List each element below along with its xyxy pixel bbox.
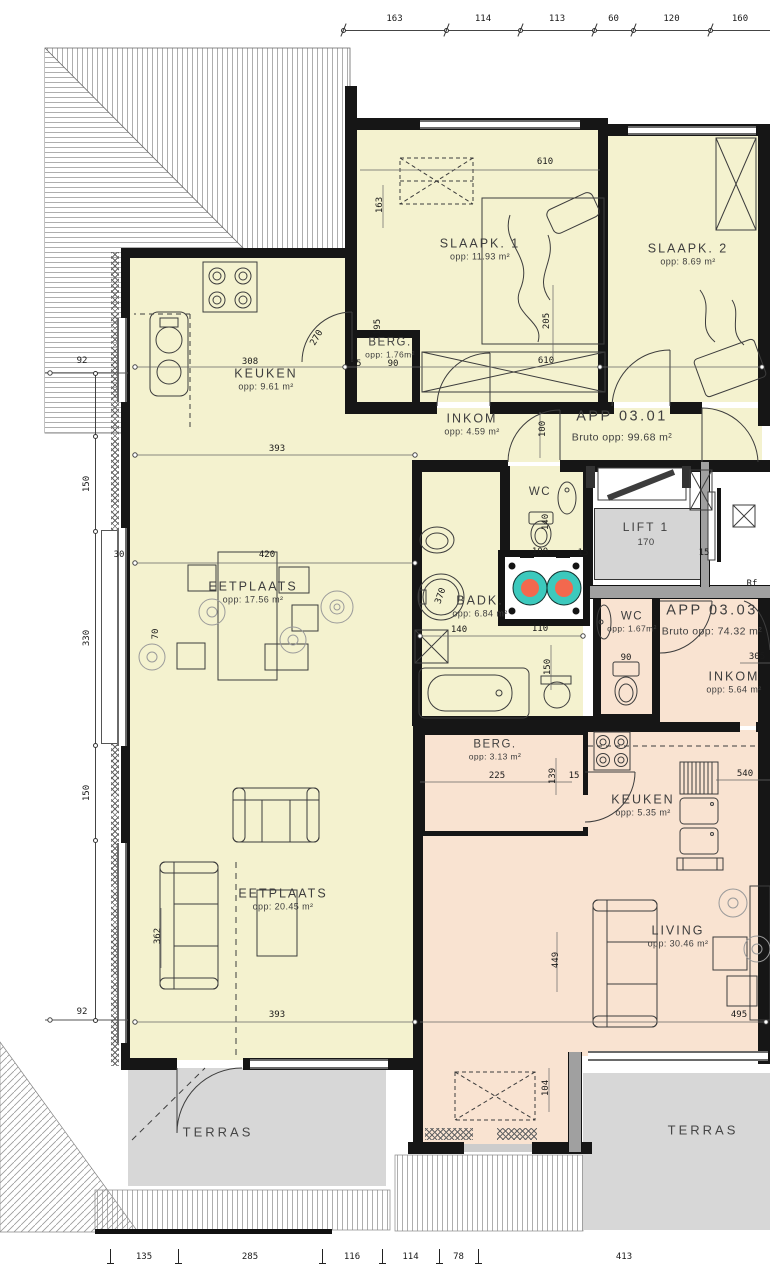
dim-chain-tick bbox=[175, 1263, 182, 1264]
room-label-app-03-01: APP 03.01Bruto opp: 99.68 m² bbox=[572, 409, 672, 444]
dimension-label: 393 bbox=[269, 444, 285, 454]
dimension-label: 308 bbox=[242, 357, 258, 367]
dimension-label: 15 bbox=[699, 548, 710, 558]
room-label-eetplaats-1: EETPLAATSopp: 17.56 m² bbox=[208, 580, 297, 605]
entrance-door-arc bbox=[702, 408, 758, 462]
room-name: BADK. bbox=[452, 594, 507, 608]
dimension-label: 116 bbox=[344, 1252, 360, 1262]
washbasin-icon bbox=[558, 482, 576, 514]
dim-chain-line bbox=[343, 30, 770, 31]
room-label-badk: BADK.opp: 6.84 m² bbox=[452, 594, 507, 619]
dimension-label: 139 bbox=[548, 768, 558, 784]
room-label-wc-3: WCopp: 1.67m² bbox=[607, 611, 657, 634]
dim-chain-line bbox=[95, 373, 96, 1020]
dimension-label: Rf bbox=[747, 579, 758, 589]
room-area: opp: 17.56 m² bbox=[208, 595, 297, 605]
lift-machinery bbox=[586, 466, 755, 562]
dimension-label: 90 bbox=[621, 653, 632, 663]
toilet-icon bbox=[613, 662, 639, 705]
bathtub-icon bbox=[419, 668, 529, 718]
room-name: KEUKEN bbox=[234, 367, 297, 381]
dim-chain-node bbox=[93, 371, 98, 376]
room-area: opp: 8.69 m² bbox=[648, 257, 729, 267]
room-area: opp: 3.13 m² bbox=[469, 752, 522, 762]
room-name: SLAAPK. 1 bbox=[440, 237, 521, 251]
dimension-label: 150 bbox=[82, 784, 92, 800]
dimension-label: 393 bbox=[269, 1010, 285, 1020]
room-area: opp: 4.59 m² bbox=[444, 427, 499, 437]
kitchen-counter bbox=[680, 762, 718, 854]
room-label-berg-1: BERG.opp: 1.76m² bbox=[365, 337, 415, 360]
room-name: LIFT 1 bbox=[623, 520, 669, 534]
dimension-label: 610 bbox=[537, 157, 553, 167]
dimension-label: 60 bbox=[608, 14, 619, 24]
wardrobe bbox=[716, 138, 756, 230]
dim-chain-node bbox=[93, 529, 98, 534]
room-label-inkom-3: INKOMopp: 5.64 m² bbox=[706, 670, 761, 695]
room-label-app-03-03: APP 03.03Bruto opp: 74.32 m² bbox=[662, 603, 762, 638]
room-label-keuken-3: KEUKENopp: 5.35 m² bbox=[611, 793, 674, 818]
dimension-label: 100 bbox=[532, 547, 548, 557]
sofa bbox=[233, 788, 319, 842]
room-label-living: LIVINGopp: 30.46 m² bbox=[648, 924, 709, 949]
room-area: Bruto opp: 74.32 m² bbox=[662, 626, 762, 638]
dim-chain-tick bbox=[107, 1263, 114, 1264]
side-table bbox=[713, 937, 747, 970]
dimension-label: 195 bbox=[373, 319, 383, 335]
dimension-label: 15 bbox=[578, 548, 589, 558]
dimension-label: 330 bbox=[82, 630, 92, 646]
door-arc bbox=[612, 350, 670, 406]
room-name: EETPLAATS bbox=[238, 887, 327, 901]
dimension-label: 90 bbox=[388, 359, 399, 369]
room-label-keuken-1: KEUKENopp: 9.61 m² bbox=[234, 367, 297, 392]
room-name: WC bbox=[529, 486, 551, 498]
dim-chain-tick bbox=[382, 1249, 383, 1263]
cabinet-dashed bbox=[455, 1072, 535, 1120]
dim-chain-tick bbox=[110, 1249, 111, 1263]
dimension-label: 92 bbox=[77, 1007, 88, 1017]
dim-chain-tick bbox=[322, 1249, 323, 1263]
dim-lines bbox=[135, 170, 770, 1112]
room-label-wc-1: WC bbox=[529, 486, 551, 498]
room-name: BERG. bbox=[469, 739, 522, 751]
dimension-label: 120 bbox=[663, 14, 679, 24]
wardrobe-dashed bbox=[400, 158, 473, 204]
boiler-icon bbox=[541, 676, 571, 708]
room-label-terras-left: TERRAS bbox=[183, 1125, 254, 1140]
dimension-label: 163 bbox=[386, 14, 402, 24]
dimension-label: 114 bbox=[475, 14, 491, 24]
room-name: INKOM bbox=[444, 412, 499, 426]
dimension-label: 362 bbox=[153, 928, 163, 944]
dimension-label: 113 bbox=[549, 14, 565, 24]
dim-chain-tick bbox=[439, 1249, 440, 1263]
room-label-slaapk-1: SLAAPK. 1opp: 11.93 m² bbox=[440, 237, 521, 262]
dimension-label: 30 bbox=[114, 550, 125, 560]
dimension-label: 205 bbox=[542, 313, 552, 329]
door-arc bbox=[302, 312, 352, 362]
dimension-label: 110 bbox=[532, 624, 548, 634]
room-name: TERRAS bbox=[668, 1123, 739, 1138]
dimension-label: 114 bbox=[402, 1252, 418, 1262]
dimension-label: 15 bbox=[569, 771, 580, 781]
kitchen-sink-icon bbox=[150, 312, 188, 396]
room-label-lift-1: LIFT 1170 bbox=[623, 520, 669, 548]
room-name: BERG. bbox=[365, 337, 415, 349]
dimension-label: 413 bbox=[616, 1252, 632, 1262]
room-area: opp: 11.93 m² bbox=[440, 252, 521, 262]
sofa bbox=[160, 862, 218, 989]
dim-chain-tick bbox=[436, 1263, 443, 1264]
dimension-label: 92 bbox=[77, 356, 88, 366]
washer-dryer-unit bbox=[498, 550, 590, 626]
room-area: opp: 1.67m² bbox=[607, 624, 657, 634]
dimension-label: 100 bbox=[538, 421, 548, 437]
dimension-label: 495 bbox=[731, 1010, 747, 1020]
room-label-inkom-1: INKOMopp: 4.59 m² bbox=[444, 412, 499, 437]
dimension-label: 420 bbox=[259, 550, 275, 560]
room-area: opp: 9.61 m² bbox=[234, 382, 297, 392]
dimension-label: 285 bbox=[242, 1252, 258, 1262]
dimension-label: 104 bbox=[541, 1080, 551, 1096]
dining-table bbox=[177, 552, 318, 680]
dim-chain-node bbox=[93, 838, 98, 843]
room-label-berg-3: BERG.opp: 3.13 m² bbox=[469, 739, 522, 762]
furniture-layer bbox=[0, 0, 770, 1269]
room-name: WC bbox=[607, 611, 657, 623]
dimension-label: 449 bbox=[551, 952, 561, 968]
dim-chain-tick bbox=[178, 1249, 179, 1263]
room-area: opp: 1.76m² bbox=[365, 350, 415, 360]
dim-chain-node bbox=[93, 434, 98, 439]
dimension-label: 163 bbox=[375, 197, 385, 213]
dim-chain-tick bbox=[319, 1263, 326, 1264]
dimension-label: 135 bbox=[136, 1252, 152, 1262]
dimension-label: 78 bbox=[453, 1252, 464, 1262]
dimension-label: 610 bbox=[538, 356, 554, 366]
tv-bench bbox=[677, 858, 723, 870]
door-arc bbox=[177, 1068, 242, 1133]
washbasin-icon bbox=[420, 527, 454, 553]
room-name: INKOM bbox=[706, 670, 761, 684]
room-name: TERRAS bbox=[183, 1125, 254, 1140]
room-area: opp: 5.64 m² bbox=[706, 685, 761, 695]
dimension-label: 140 bbox=[451, 625, 467, 635]
door-arc bbox=[508, 410, 560, 462]
side-table bbox=[727, 976, 757, 1006]
dim-line bbox=[45, 373, 128, 1020]
room-area: Bruto opp: 99.68 m² bbox=[572, 432, 672, 444]
dimension-label: 150 bbox=[543, 659, 553, 675]
room-area: opp: 6.84 m² bbox=[452, 609, 507, 619]
bed-single bbox=[693, 290, 767, 398]
room-area: opp: 5.35 m² bbox=[611, 808, 674, 818]
room-label-terras-right: TERRAS bbox=[668, 1123, 739, 1138]
dimension-label: 540 bbox=[737, 769, 753, 779]
room-name: LIVING bbox=[648, 924, 709, 938]
dim-chain-tick bbox=[478, 1249, 479, 1263]
room-area: opp: 30.46 m² bbox=[648, 939, 709, 949]
room-name: APP 03.03 bbox=[662, 603, 762, 619]
dimension-label: 160 bbox=[732, 14, 748, 24]
dim-chain-tick bbox=[475, 1263, 482, 1264]
stove-icon bbox=[594, 732, 630, 770]
room-area: 170 bbox=[623, 537, 669, 548]
counter-outline bbox=[134, 314, 190, 430]
room-name: SLAAPK. 2 bbox=[648, 242, 729, 256]
dim-chain-node bbox=[93, 1018, 98, 1023]
dim-chain-node bbox=[93, 743, 98, 748]
room-label-eetplaats-2: EETPLAATSopp: 20.45 m² bbox=[238, 887, 327, 912]
sofa bbox=[593, 900, 657, 1027]
dim-chain-tick bbox=[379, 1263, 386, 1264]
room-name: KEUKEN bbox=[611, 793, 674, 807]
room-name: EETPLAATS bbox=[208, 580, 297, 594]
room-name: APP 03.01 bbox=[572, 409, 672, 425]
room-area: opp: 20.45 m² bbox=[238, 902, 327, 912]
dimension-label: 140 bbox=[541, 514, 551, 530]
dimension-label: 305 bbox=[749, 652, 765, 662]
floor-plan: SLAAPK. 1opp: 11.93 m²SLAAPK. 2opp: 8.69… bbox=[0, 0, 770, 1269]
dimension-label: 225 bbox=[489, 771, 505, 781]
dimension-label: 70 bbox=[151, 629, 161, 640]
room-label-slaapk-2: SLAAPK. 2opp: 8.69 m² bbox=[648, 242, 729, 267]
dimension-label: 15 bbox=[351, 359, 362, 369]
people-sketch bbox=[719, 889, 770, 962]
dimension-label: 150 bbox=[82, 475, 92, 491]
stove-icon bbox=[203, 262, 257, 312]
